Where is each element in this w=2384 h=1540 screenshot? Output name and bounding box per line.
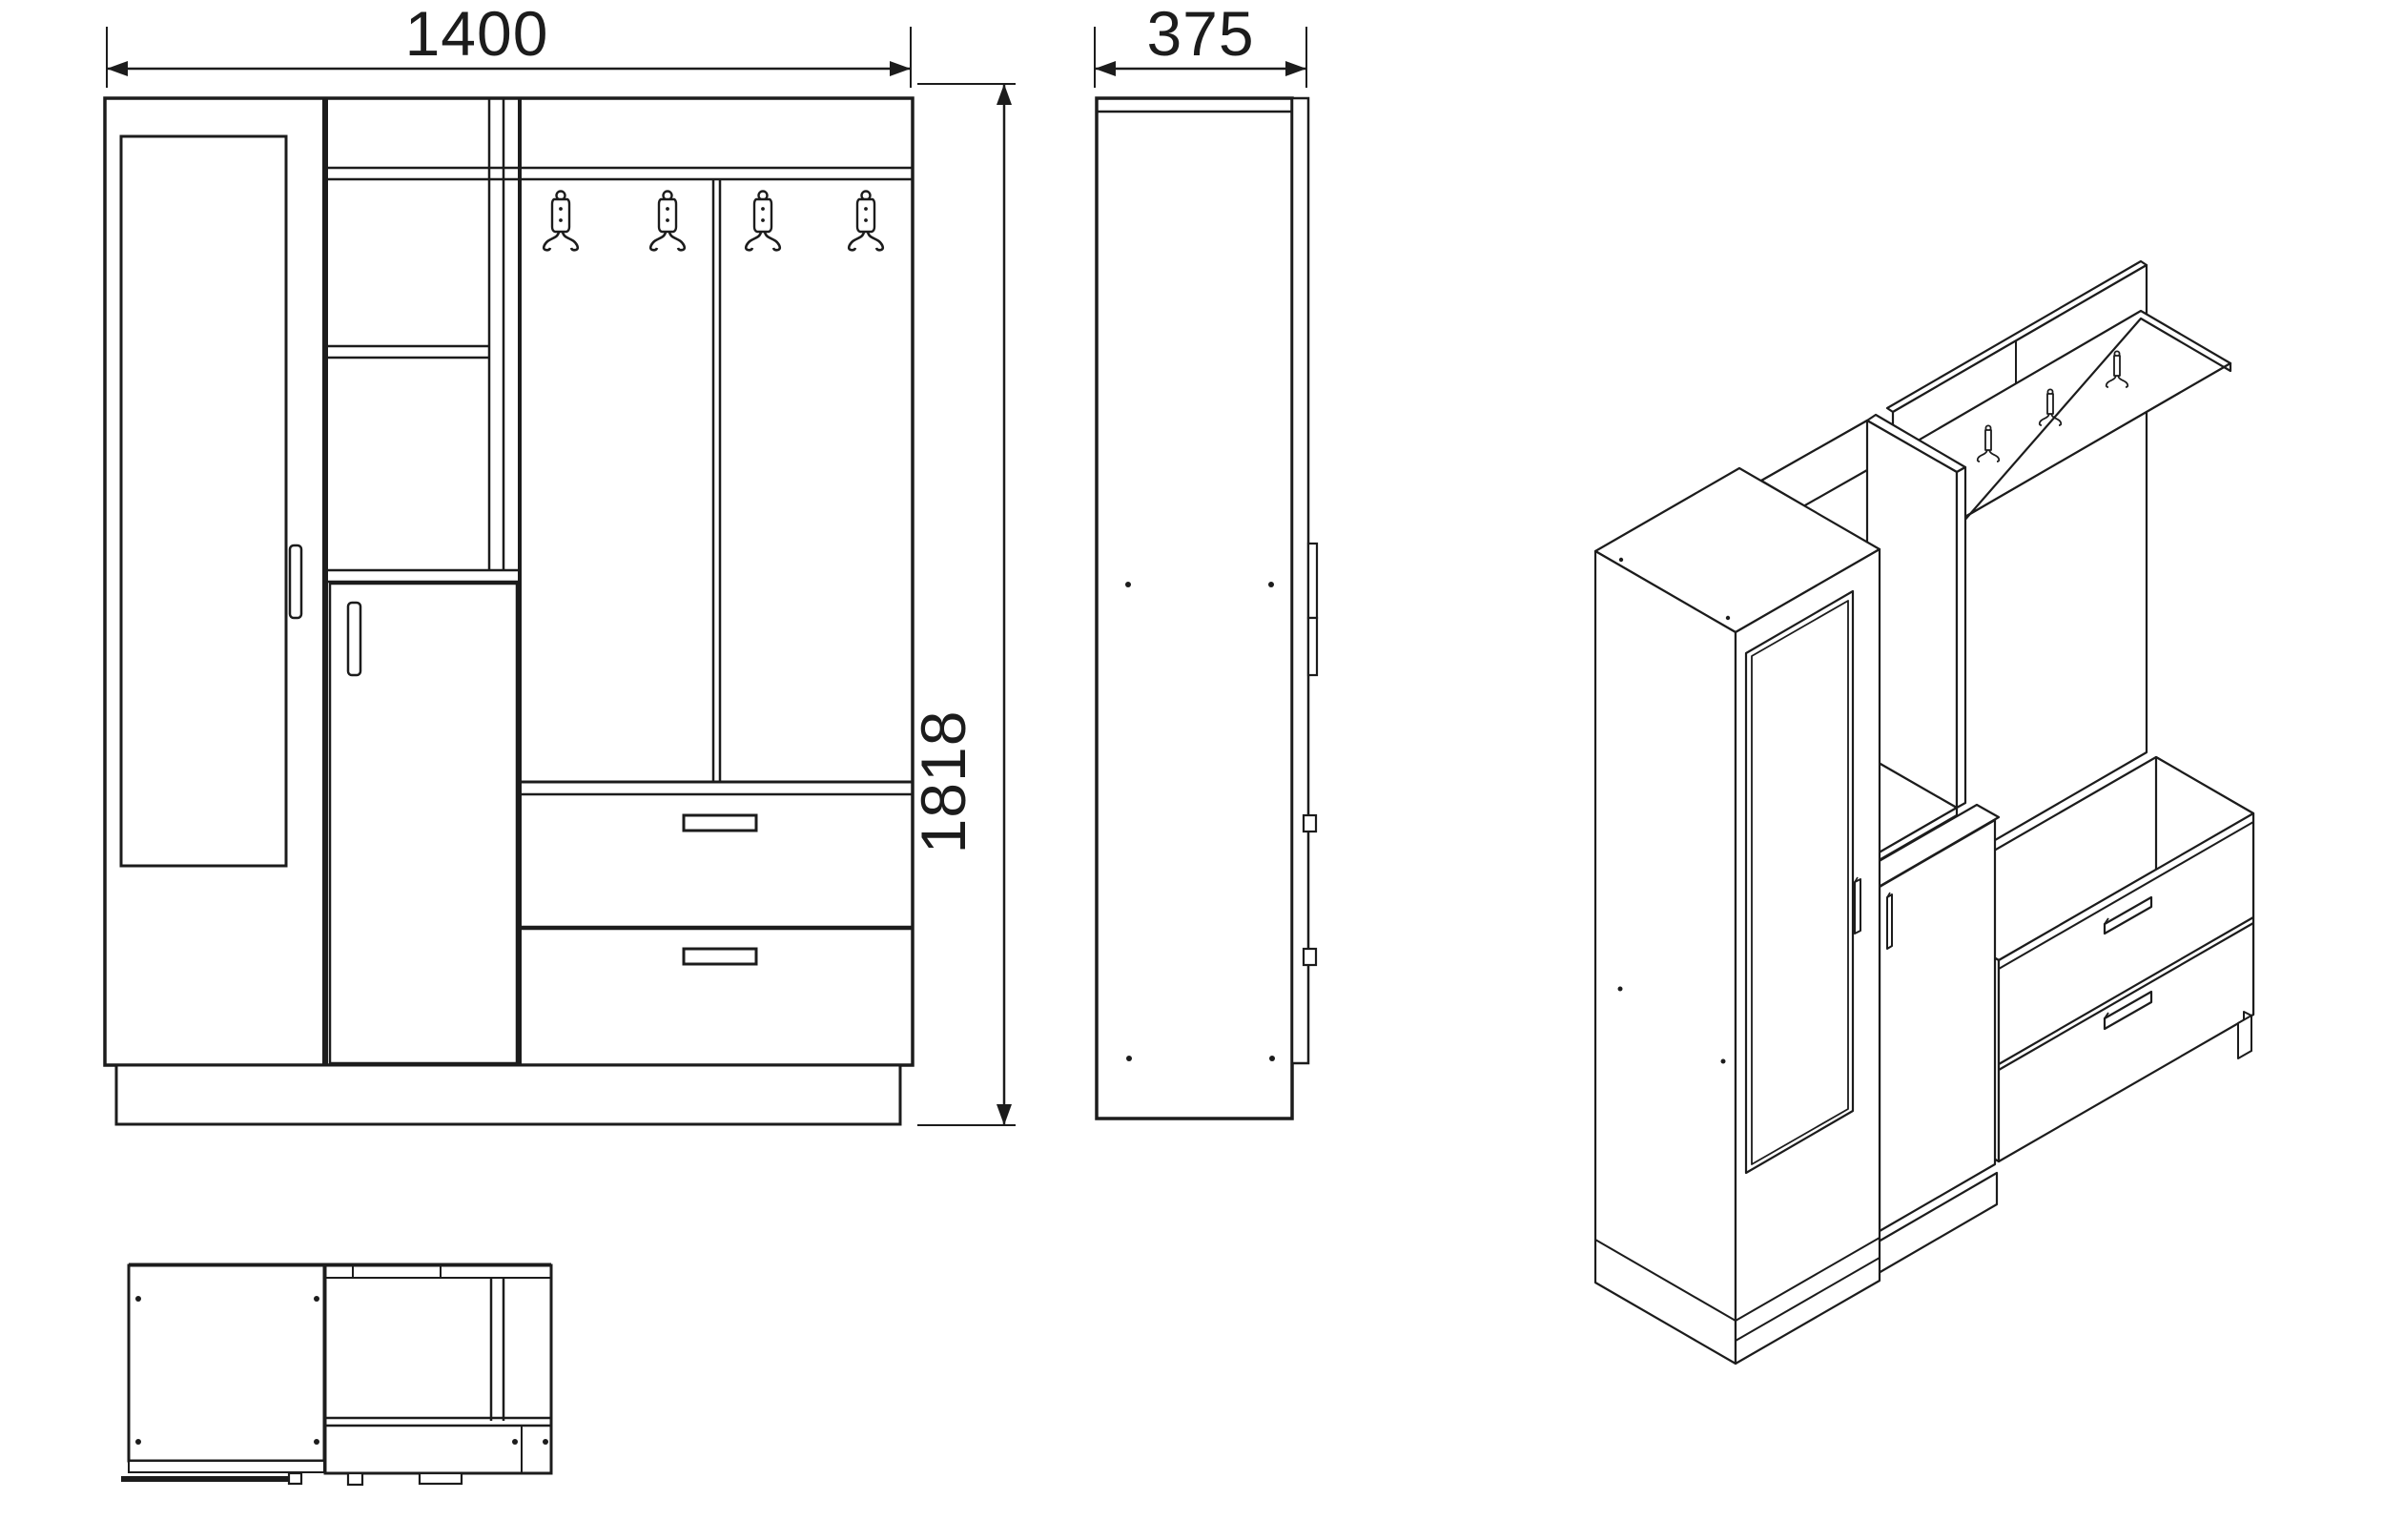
iso-mirror-door-handle (1855, 879, 1860, 934)
drawing-sheet: 1400 1818 (0, 0, 2384, 1540)
fitting-mark-dot-icon (1268, 582, 1274, 587)
front-view: 1400 1818 (105, 0, 1016, 1125)
fitting-mark-dot-icon (135, 1439, 141, 1445)
arrowhead-left-icon (107, 61, 128, 76)
mirror-door (121, 136, 286, 866)
arrowhead-up-icon (997, 84, 1012, 105)
plan-foot (348, 1473, 362, 1485)
arrowhead-right-icon (890, 61, 911, 76)
fitting-mark-dot-icon (314, 1296, 319, 1302)
fitting-mark-dot-icon (1726, 616, 1730, 620)
fitting-mark-dot-icon (135, 1296, 141, 1302)
fitting-mark-dot-icon (543, 1439, 548, 1445)
arrowhead-left-icon (1095, 61, 1116, 76)
side-drawer-handle-profile (1304, 815, 1316, 832)
cabinet-door-handle (348, 603, 360, 675)
arrowhead-right-icon (1285, 61, 1306, 76)
iso-wardrobe-left-side (1595, 551, 1736, 1364)
fitting-mark-dot-icon (1125, 582, 1131, 587)
iso-cabinet-door (1880, 820, 1995, 1231)
side-view: 375 (1095, 0, 1317, 1119)
iso-inner-panel-front (1957, 467, 1965, 808)
drawer-handle (684, 815, 756, 831)
iso-leg (2238, 1016, 2251, 1058)
iso-mirror-door (1746, 591, 1853, 1173)
side-drawer-handle-profile (1304, 949, 1316, 965)
fitting-mark-dot-icon (314, 1439, 319, 1445)
side-door-profile (1292, 98, 1308, 1063)
fitting-mark-dot-icon (1721, 1059, 1726, 1064)
arrowhead-down-icon (997, 1104, 1012, 1125)
side-body-outline (1097, 98, 1292, 1119)
drawer-handle (684, 949, 756, 964)
fitting-mark-dot-icon (512, 1439, 518, 1445)
dimension-depth-label: 375 (1146, 0, 1254, 69)
dimension-width-label: 1400 (405, 0, 549, 69)
dimension-height: 1818 (908, 84, 1016, 1125)
fitting-mark-dot-icon (1618, 987, 1623, 992)
side-door-handle-profile (1308, 618, 1317, 675)
dimension-height-label: 1818 (908, 710, 978, 854)
plan-wardrobe-door-edge (129, 1461, 324, 1472)
front-plinth (116, 1065, 900, 1124)
plan-wardrobe-block (129, 1265, 324, 1461)
plan-view (121, 1265, 551, 1485)
fitting-mark-dot-icon (1269, 1056, 1275, 1061)
fitting-mark-dot-icon (1619, 558, 1623, 562)
side-door-handle-profile (1308, 544, 1317, 618)
technical-drawing: 1400 1818 (0, 0, 2384, 1540)
iso-cabinet-door-handle (1887, 894, 1892, 949)
plan-foot (420, 1473, 462, 1484)
fitting-mark-dot-icon (1126, 1056, 1132, 1061)
dimension-depth: 375 (1095, 0, 1306, 88)
mirror-door-handle (290, 545, 301, 618)
plan-foot (289, 1473, 301, 1484)
dimension-width: 1400 (107, 0, 911, 88)
isometric-view (1595, 261, 2253, 1364)
